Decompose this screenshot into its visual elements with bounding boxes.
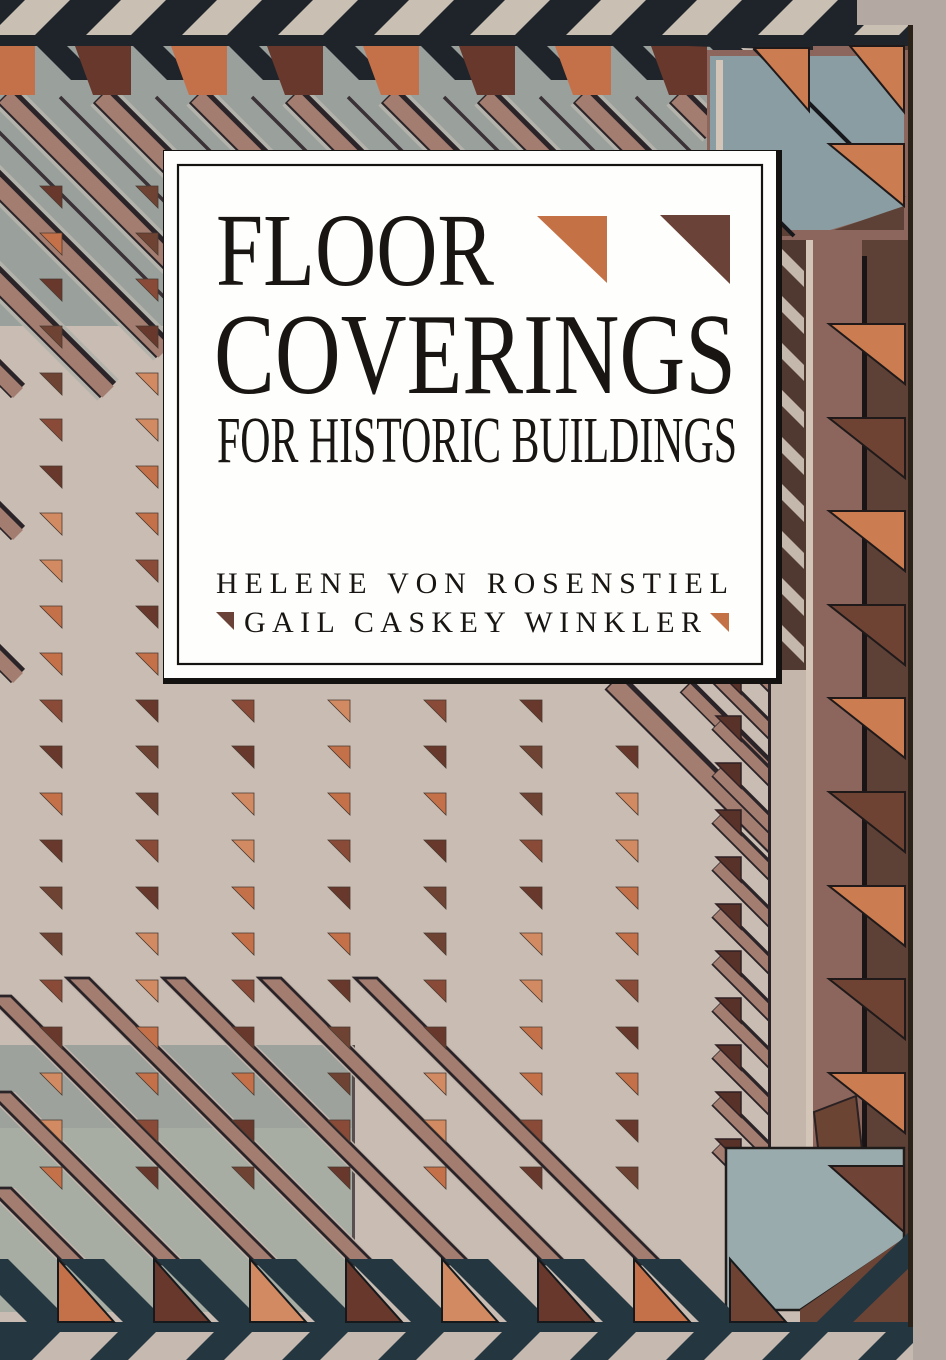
svg-text:FOR HISTORIC BUILDINGS: FOR HISTORIC BUILDINGS: [217, 404, 737, 477]
svg-text:COVERINGS: COVERINGS: [214, 291, 736, 418]
